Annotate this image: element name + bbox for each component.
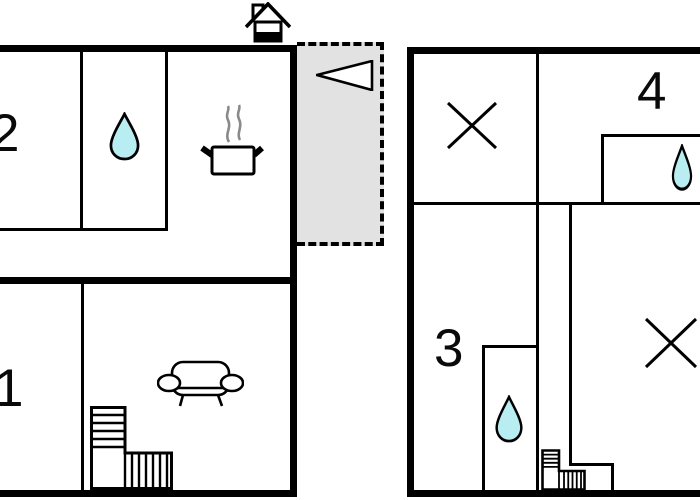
cross-icon [446, 101, 498, 150]
wall [407, 47, 414, 497]
wall [601, 134, 604, 205]
room-label-4: 4 [637, 65, 666, 118]
wall [0, 45, 297, 52]
wall [290, 45, 297, 497]
wall [611, 463, 614, 490]
floor-plan-canvas: 2 1 3 4 [0, 0, 700, 500]
wall [601, 134, 700, 137]
wall [482, 345, 485, 490]
wall [482, 345, 539, 348]
wall [81, 284, 84, 490]
wall [407, 490, 700, 497]
room-label-1: 1 [0, 362, 23, 415]
wall [80, 52, 83, 228]
wall [414, 202, 700, 205]
water-drop-icon [671, 144, 693, 191]
direction-arrow-icon [316, 60, 374, 91]
wall [569, 205, 572, 463]
water-drop-icon [494, 395, 524, 443]
sofa-icon [157, 360, 244, 408]
wall [0, 490, 297, 497]
room-label-2: 2 [0, 107, 19, 160]
house-icon [245, 2, 291, 43]
room-label-3: 3 [434, 322, 463, 375]
wall [0, 228, 168, 231]
wall [0, 277, 290, 284]
stairs-icon [90, 406, 173, 490]
cooking-pot-icon [198, 100, 266, 178]
wall [407, 47, 700, 54]
water-drop-icon [108, 112, 141, 161]
wall [165, 52, 168, 228]
wall [536, 54, 539, 490]
stairs-icon [541, 449, 586, 491]
cross-icon [644, 317, 698, 369]
